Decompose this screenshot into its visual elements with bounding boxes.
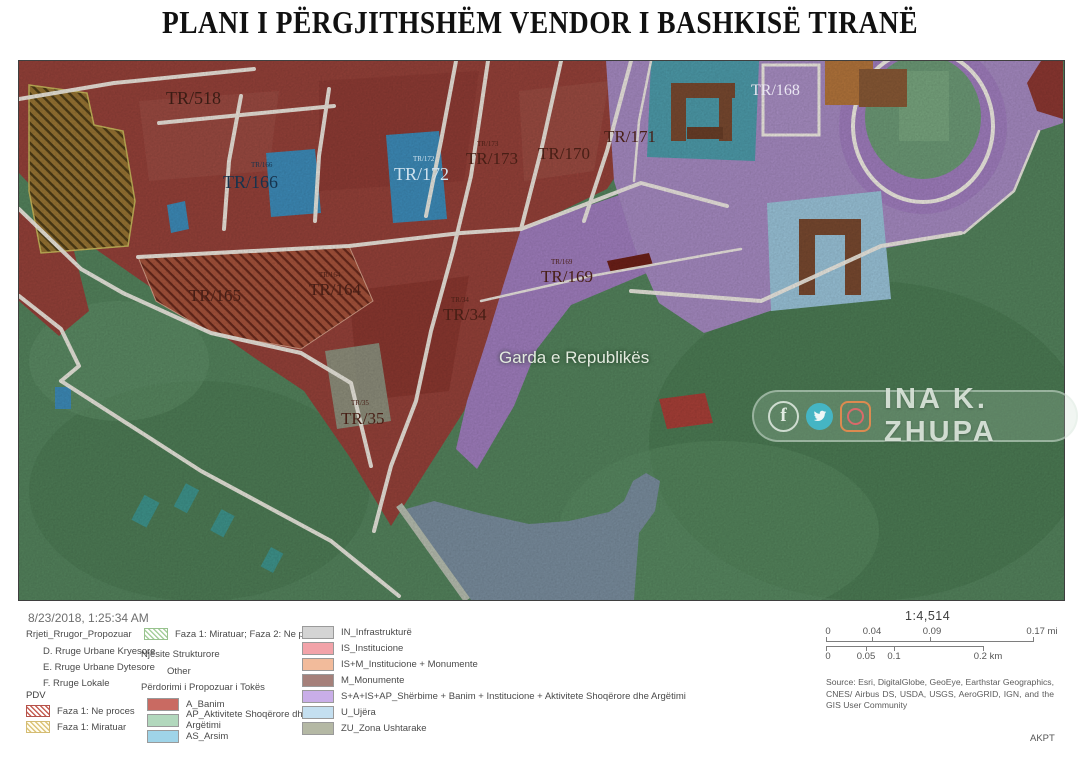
- landuse-label: M_Monumente: [341, 675, 404, 686]
- landuse-label: ZU_Zona Ushtarake: [341, 723, 427, 734]
- pdv-hatch-green-swatch: [144, 628, 168, 640]
- zone-label: TR/173: [466, 150, 518, 167]
- km-tick-label: 0.05: [857, 651, 876, 662]
- pdv-hatch-swatch: [26, 721, 50, 733]
- zone-label: TR/166: [251, 162, 272, 169]
- facebook-icon: f: [768, 401, 799, 432]
- zone-label: TR/35: [351, 400, 369, 407]
- km-tick-label: 0.2 km: [974, 651, 1003, 662]
- legend-pdv-header: PDV: [26, 690, 46, 701]
- instagram-icon: [840, 401, 871, 432]
- plan-sheet: { "title": "PLANI I PËRGJITHSHËM VENDOR …: [0, 0, 1080, 763]
- twitter-icon: [806, 403, 833, 430]
- landuse-swatch: [302, 658, 334, 671]
- landuse-swatch: [302, 722, 334, 735]
- zone-label: TR/172: [394, 165, 449, 183]
- landuse-swatch: [147, 730, 179, 743]
- satellite-grain: [19, 61, 1064, 600]
- zone-label: TR/518: [166, 89, 221, 107]
- legend-landuse-list-1: A_BanimAP_Aktivitete Shoqërore dhe Argët…: [147, 696, 327, 744]
- legend-landuse-list-2: IN_InfrastrukturëIS_InstitucioneIS+M_Ins…: [302, 624, 722, 736]
- landuse-label: IS+M_Institucione + Monumente: [341, 659, 478, 670]
- zone-label: TR/164: [319, 272, 340, 279]
- zone-label: TR/169: [551, 259, 572, 266]
- zone-label: TR/164: [309, 281, 361, 298]
- scale-ratio: 1:4,514: [905, 609, 950, 623]
- road-class-label: F. Rruge Lokale: [43, 678, 110, 689]
- pdv-label: Faza 1: Ne proces: [57, 706, 135, 717]
- road-class-label: D. Rruge Urbane Kryesore: [43, 646, 155, 657]
- zone-label: TR/35: [341, 410, 384, 427]
- zoning-map[interactable]: TR/518TR/166TR/166TR/172TR/172TR/173TR/1…: [18, 60, 1065, 601]
- landuse-label: IN_Infrastrukturë: [341, 627, 412, 638]
- watermark: f INA K. ZHUPA: [752, 390, 1078, 442]
- zone-label: Garda e Republikës: [499, 349, 649, 366]
- zone-label: TR/34: [443, 306, 486, 323]
- landuse-label: IS_Institucione: [341, 643, 403, 654]
- zone-label: TR/34: [451, 297, 469, 304]
- legend-roads-header: Rrjeti_Rrugor_Propozuar: [26, 629, 132, 640]
- mile-tick-label: 0.09: [923, 626, 942, 637]
- zone-label: TR/166: [223, 173, 278, 191]
- legend-structural-header: Njësite Strukturore: [141, 649, 220, 660]
- source-attribution: Source: Esri, DigitalGlobe, GeoEye, Eart…: [826, 677, 1054, 712]
- mile-tick-label: 0.04: [863, 626, 882, 637]
- agency-label: AKPT: [1030, 733, 1055, 744]
- watermark-text: INA K. ZHUPA: [884, 383, 1076, 449]
- legend-structural-list: Other: [167, 663, 191, 679]
- zone-label: TR/171: [604, 128, 656, 145]
- landuse-label: S+A+IS+AP_Shërbime + Banim + Institucion…: [341, 691, 686, 702]
- road-class-label: E. Rruge Urbane Dytesore: [43, 662, 155, 673]
- pdv-hatch-swatch: [26, 705, 50, 717]
- landuse-swatch: [302, 706, 334, 719]
- timestamp: 8/23/2018, 1:25:34 AM: [28, 611, 149, 625]
- zone-label: TR/173: [477, 141, 498, 148]
- zone-label: TR/165: [189, 287, 241, 304]
- page-title: PLANI I PËRGJITHSHËM VENDOR I BASHKISË T…: [11, 6, 1069, 42]
- zone-label: TR/172: [413, 156, 434, 163]
- pdv-label: Faza 1: Miratuar: [57, 722, 126, 733]
- mile-tick-label: 0.17 mi: [1026, 626, 1057, 637]
- landuse-label: AS_Arsim: [186, 731, 228, 742]
- landuse-swatch: [147, 698, 179, 711]
- structural-label: Other: [167, 666, 191, 677]
- zone-label: TR/170: [538, 145, 590, 162]
- zone-label: TR/168: [751, 83, 800, 99]
- legend-pdv-extra: Faza 1: Miratuar; Faza 2: Ne proces: [144, 626, 327, 642]
- scalebar-km: 0 0.05 0.1 0.2 km: [826, 646, 984, 647]
- km-tick-label: 0.1: [887, 651, 900, 662]
- landuse-label: A_Banim: [186, 699, 225, 710]
- satellite-zoning-canvas: [19, 61, 1064, 600]
- landuse-swatch: [302, 642, 334, 655]
- landuse-swatch: [302, 674, 334, 687]
- landuse-swatch: [302, 626, 334, 639]
- landuse-label: U_Ujëra: [341, 707, 376, 718]
- mile-tick-label: 0: [825, 626, 830, 637]
- km-tick-label: 0: [825, 651, 830, 662]
- zone-label: TR/169: [541, 268, 593, 285]
- landuse-swatch: [302, 690, 334, 703]
- scalebar-miles: 0 0.04 0.09 0.17 mi: [826, 641, 1034, 642]
- legend-landuse-header: Përdorimi i Propozuar i Tokës: [141, 682, 265, 693]
- landuse-swatch: [147, 714, 179, 727]
